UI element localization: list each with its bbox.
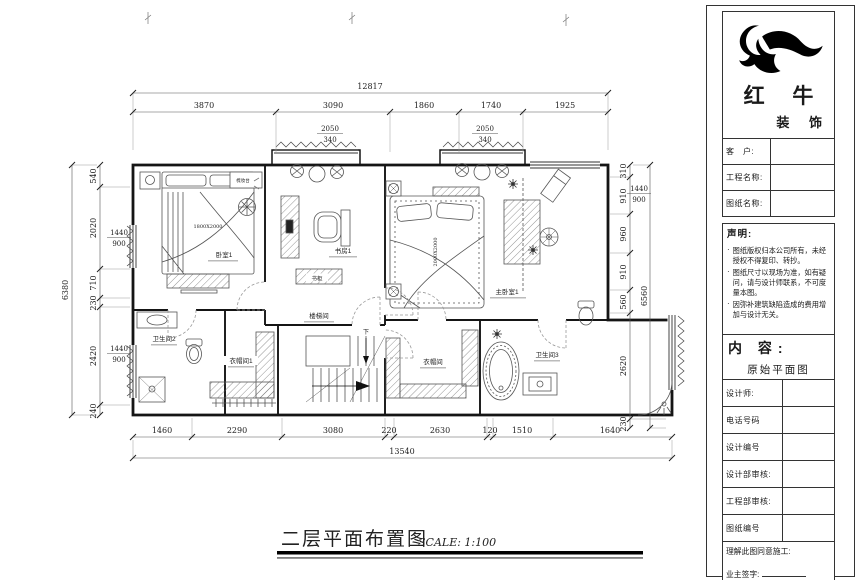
field-row-design-no: 设计编号 bbox=[723, 433, 834, 460]
bullet-icon: · bbox=[727, 246, 730, 265]
design-no-value bbox=[782, 434, 834, 460]
content-value: 原始平面图 bbox=[728, 362, 829, 377]
room-label-bathroom2: 卫生间2 bbox=[152, 334, 176, 343]
dim-bot-8: 1640 bbox=[600, 426, 620, 435]
room-label-study: 书房1 bbox=[335, 246, 352, 255]
bathroom2-fixtures bbox=[137, 312, 202, 402]
brand-name: 红 牛 bbox=[723, 80, 834, 110]
win1-h: 340 bbox=[323, 136, 336, 144]
win4-h: 900 bbox=[112, 356, 125, 364]
dim-left-4: 230 bbox=[89, 295, 98, 310]
dim-top-2: 3090 bbox=[323, 101, 343, 110]
design-no-label: 设计编号 bbox=[723, 442, 782, 453]
dim-bot-6: 120 bbox=[482, 426, 497, 435]
brand-subtitle: 装 饰 bbox=[723, 112, 834, 131]
win5-h: 900 bbox=[632, 196, 645, 204]
brand-logo-box: 红 牛 装 饰 bbox=[722, 11, 835, 139]
room-subtext bbox=[208, 260, 238, 262]
signature-line bbox=[762, 568, 806, 577]
field-row-engineering-review: 工程部审核: bbox=[723, 487, 834, 514]
room-label-cloakroom2: 衣帽间 bbox=[423, 357, 443, 366]
sheet-title: 二层平面布置图 SCALE: 1:100 bbox=[277, 528, 643, 558]
phone-value bbox=[782, 407, 834, 433]
field-row-project: 工程名称: bbox=[723, 164, 834, 190]
client-label: 客 户: bbox=[723, 146, 770, 157]
dim-top-3: 1860 bbox=[414, 101, 434, 110]
win2-w: 2050 bbox=[476, 125, 494, 133]
label-dressing-table: 梳妆台 bbox=[236, 177, 250, 184]
dim-bot-7: 1510 bbox=[512, 426, 532, 435]
field-row-drawing-no: 图纸编号 bbox=[723, 514, 834, 541]
drawing-no-label: 图纸编号 bbox=[723, 523, 782, 534]
dim-bot-1: 1460 bbox=[152, 426, 172, 435]
win1-w: 2050 bbox=[321, 125, 339, 133]
room-subtext bbox=[329, 256, 357, 258]
dim-right-overall: 6560 bbox=[640, 286, 649, 306]
bedroom1-furniture bbox=[140, 172, 262, 293]
statement-text-1: 图纸版权归本公司所有，未经授权不得复印、转抄。 bbox=[733, 246, 830, 265]
dim-bottom-overall: 13540 bbox=[389, 447, 414, 456]
drawing-name-value bbox=[770, 191, 834, 216]
room-subtext bbox=[420, 367, 446, 369]
dim-bot-5: 2630 bbox=[430, 426, 450, 435]
win3-w: 1440 bbox=[110, 229, 128, 237]
label-bookcase: 书柜 bbox=[311, 275, 323, 283]
stairs bbox=[306, 336, 385, 402]
label-bed2-size: 2000X2000 bbox=[433, 237, 439, 266]
dim-left-6: 240 bbox=[89, 403, 98, 418]
drawing-no-value bbox=[782, 515, 834, 541]
title-underline-thin bbox=[277, 558, 643, 559]
dim-right-7: 230 bbox=[619, 416, 628, 431]
dim-right-6: 2620 bbox=[619, 356, 628, 376]
statement-item: · 图纸版权归本公司所有，未经授权不得复印、转抄。 bbox=[727, 246, 830, 265]
dim-left-5: 2420 bbox=[89, 346, 98, 366]
design-review-value bbox=[782, 461, 834, 487]
dim-top-5: 1925 bbox=[555, 101, 575, 110]
study-furniture bbox=[281, 165, 350, 285]
dim-top-4: 1740 bbox=[481, 101, 501, 110]
cloakroom1-wardrobe bbox=[210, 332, 276, 407]
title-underline bbox=[277, 551, 643, 555]
master-bedroom-furniture bbox=[386, 164, 570, 309]
room-subtext bbox=[304, 321, 334, 323]
plant-icon bbox=[492, 329, 502, 339]
room-subtext bbox=[534, 360, 560, 362]
room-label-cloakroom1: 衣帽间1 bbox=[229, 356, 253, 365]
field-row-drawing-name: 图纸名称: bbox=[723, 190, 834, 216]
bullet-icon: · bbox=[727, 268, 730, 297]
room-label-bathroom3: 卫生间3 bbox=[535, 350, 559, 359]
statement-item: · 图纸尺寸以现场为准，如有疑问，请与设计师联系，不可度量本图。 bbox=[727, 268, 830, 297]
statement-text-3: 因弥补建筑缺陷造成的费用增加与设计无关。 bbox=[733, 300, 830, 319]
dim-right-1: 310 bbox=[619, 163, 628, 178]
dim-left-1: 540 bbox=[89, 168, 98, 183]
client-value bbox=[770, 139, 834, 164]
win3-h: 900 bbox=[112, 240, 125, 248]
title-block: 红 牛 装 饰 客 户: 工程名称: 图纸名称: 声明: · 图纸版权归本公司所… bbox=[706, 5, 855, 577]
drawing-sheet: 12817 3870 3090 1860 1740 1925 1460 2290… bbox=[0, 0, 860, 580]
field-row-phone: 电话号码 bbox=[723, 406, 834, 433]
signature-fields: 设计师: 电话号码 设计编号 设计部审核: 工程部审核: 图纸编号 bbox=[722, 379, 835, 542]
bathroom3-fixtures bbox=[483, 301, 672, 415]
statement-item: · 因弥补建筑缺陷造成的费用增加与设计无关。 bbox=[727, 300, 830, 319]
content-heading: 内 容: bbox=[728, 338, 829, 358]
dim-top-overall: 12817 bbox=[357, 82, 382, 91]
dim-left-overall: 6380 bbox=[61, 280, 70, 300]
dim-right-2: 910 bbox=[619, 188, 628, 203]
header-fields: 客 户: 工程名称: 图纸名称: bbox=[722, 138, 835, 217]
project-label: 工程名称: bbox=[723, 172, 770, 183]
content-box: 内 容: 原始平面图 bbox=[722, 334, 835, 380]
owner-signature-box: 理解此图同意施工: 业主签字: bbox=[722, 541, 835, 580]
room-label-bedroom1: 卧室1 bbox=[216, 250, 233, 259]
dim-bot-4: 220 bbox=[381, 426, 396, 435]
dim-left-2: 2020 bbox=[89, 218, 98, 238]
win5-w: 1440 bbox=[630, 185, 648, 193]
statement-text-2: 图纸尺寸以现场为准，如有疑问，请与设计师联系，不可度量本图。 bbox=[733, 268, 830, 297]
bullet-icon: · bbox=[727, 300, 730, 319]
owner-sign-label: 业主签字: bbox=[726, 570, 759, 579]
drawing-title: 二层平面布置图 bbox=[281, 528, 428, 550]
label-bed1-size: 1800X2000 bbox=[193, 224, 222, 230]
floor-plan-drawing: 12817 3870 3090 1860 1740 1925 1460 2290… bbox=[0, 0, 706, 580]
field-row-client: 客 户: bbox=[723, 139, 834, 164]
dim-bot-2: 2290 bbox=[227, 426, 247, 435]
room-subtext bbox=[490, 297, 526, 299]
dim-right-5: 560 bbox=[619, 294, 628, 309]
dim-bot-3: 3080 bbox=[323, 426, 343, 435]
dimension-lines bbox=[69, 90, 675, 461]
win4-w: 1440 bbox=[110, 345, 128, 353]
phone-label: 电话号码 bbox=[723, 415, 782, 426]
room-label-master: 主卧室1 bbox=[495, 287, 519, 296]
room-subtext bbox=[151, 344, 177, 346]
dim-right-3: 960 bbox=[619, 226, 628, 241]
win2-h: 340 bbox=[478, 136, 491, 144]
designer-label: 设计师: bbox=[723, 388, 782, 399]
room-subtext bbox=[228, 366, 254, 368]
design-review-label: 设计部审核: bbox=[723, 469, 782, 480]
field-row-designer: 设计师: bbox=[723, 380, 834, 406]
engineering-review-label: 工程部审核: bbox=[723, 496, 782, 507]
room-label-stairwell: 楼梯间 bbox=[309, 311, 329, 320]
label-stairs-down: 下 bbox=[363, 329, 369, 336]
redbull-logo-icon bbox=[733, 17, 825, 79]
field-row-design-review: 设计部审核: bbox=[723, 460, 834, 487]
dim-top-1: 3870 bbox=[194, 101, 214, 110]
engineering-review-value bbox=[782, 488, 834, 514]
drawing-scale: SCALE: 1:100 bbox=[418, 536, 496, 549]
statement-heading: 声明: bbox=[727, 229, 830, 242]
dim-right-4: 910 bbox=[619, 264, 628, 279]
project-value bbox=[770, 165, 834, 190]
agree-label: 理解此图同意施工: bbox=[726, 546, 831, 557]
drawing-name-label: 图纸名称: bbox=[723, 198, 770, 209]
designer-value bbox=[782, 380, 834, 406]
statement-box: 声明: · 图纸版权归本公司所有，未经授权不得复印、转抄。 · 图纸尺寸以现场为… bbox=[722, 223, 835, 335]
dim-left-3: 710 bbox=[89, 275, 98, 290]
